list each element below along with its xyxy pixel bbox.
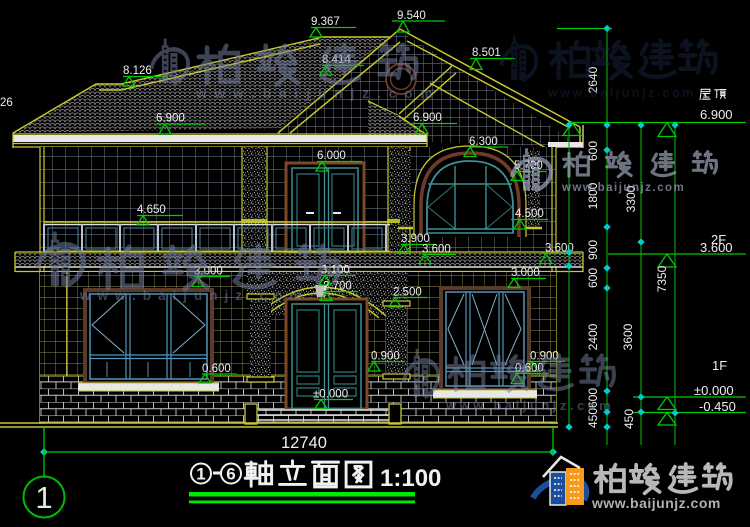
svg-text:8.501: 8.501: [472, 47, 501, 59]
svg-text:-0.450: -0.450: [699, 399, 736, 414]
svg-text:6.900: 6.900: [700, 107, 733, 122]
svg-text:3.000: 3.000: [511, 267, 540, 279]
svg-text:600: 600: [586, 268, 600, 288]
svg-text:±0.000: ±0.000: [694, 383, 734, 398]
svg-text:9.540: 9.540: [397, 10, 426, 22]
svg-text:www.baijunjz.com: www.baijunjz.com: [79, 288, 309, 303]
svg-text:6.000: 6.000: [317, 150, 346, 162]
svg-text:6.900: 6.900: [413, 112, 442, 124]
svg-text:1: 1: [196, 465, 205, 484]
svg-text:12740: 12740: [281, 434, 327, 452]
svg-text:3600: 3600: [621, 323, 635, 350]
svg-text:www.baijunjz.com: www.baijunjz.com: [445, 398, 614, 413]
svg-text:2.700: 2.700: [323, 281, 352, 293]
svg-text:6.900: 6.900: [156, 113, 185, 125]
svg-text:±0.000: ±0.000: [313, 389, 348, 401]
svg-text:6: 6: [226, 465, 235, 484]
svg-text:4.500: 4.500: [515, 208, 544, 220]
svg-text:7350: 7350: [655, 265, 669, 292]
svg-text:www.baijunjz.com: www.baijunjz.com: [591, 495, 721, 511]
svg-text:2400: 2400: [586, 323, 600, 350]
svg-text:3.600: 3.600: [422, 244, 451, 256]
svg-text:26: 26: [0, 97, 13, 109]
svg-text:450: 450: [622, 409, 636, 429]
svg-text:1:100: 1:100: [380, 465, 441, 492]
svg-text:www.baijunjz.com: www.baijunjz.com: [561, 182, 685, 194]
svg-text:6.300: 6.300: [469, 136, 498, 148]
svg-text:1: 1: [35, 480, 52, 515]
svg-text:4.650: 4.650: [137, 204, 166, 216]
svg-text:0.600: 0.600: [202, 363, 231, 375]
svg-text:www.baijunjz.com: www.baijunjz.com: [547, 86, 696, 100]
svg-text:9.367: 9.367: [311, 16, 340, 28]
svg-text:8.126: 8.126: [123, 65, 152, 77]
svg-text:3.600: 3.600: [700, 240, 733, 255]
svg-text:www.baijunjz.com: www.baijunjz.com: [195, 86, 441, 101]
svg-text:2.500: 2.500: [393, 287, 422, 299]
svg-text:900: 900: [586, 240, 600, 260]
svg-text:0.900: 0.900: [371, 351, 400, 363]
svg-text:1F: 1F: [712, 358, 727, 373]
